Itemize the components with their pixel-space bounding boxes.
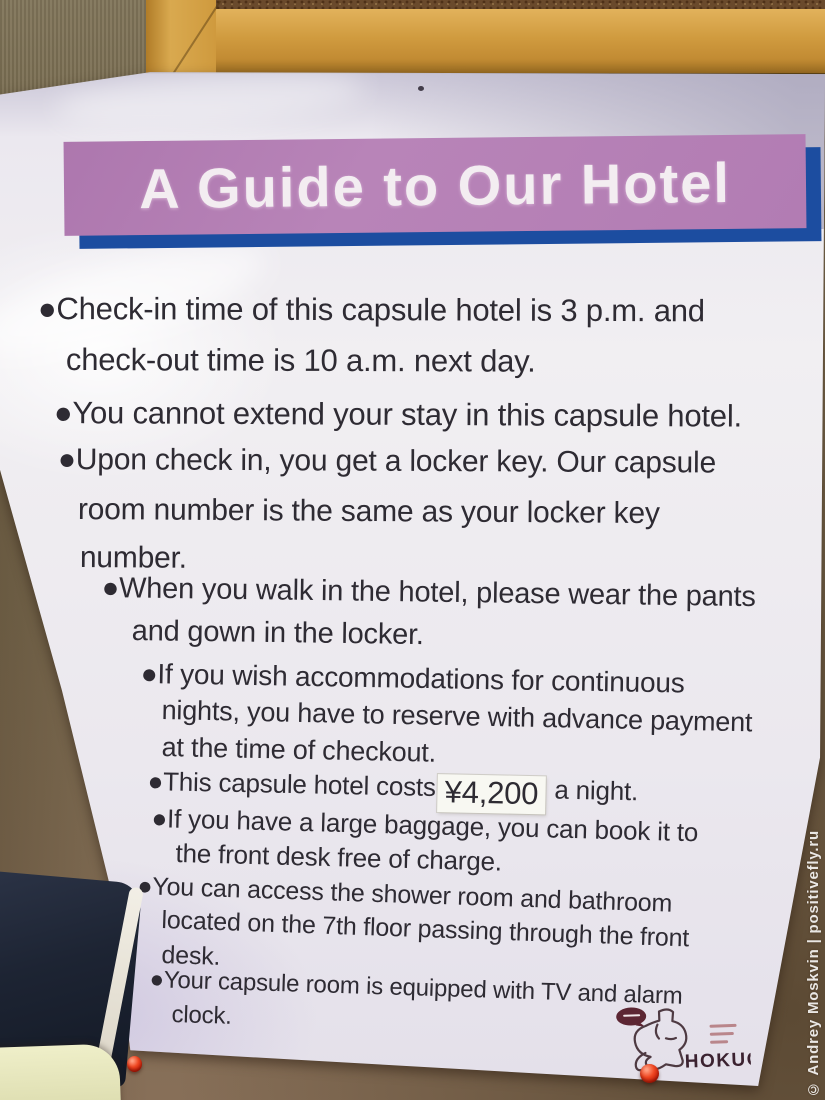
photographer-watermark: © Andrey Moskvin | positivefly.ru (805, 830, 822, 1098)
poster-bullet-line: check-out time is 10 a.m. next day. (66, 342, 536, 380)
poster-bullet-line: at the time of checkout. (161, 732, 436, 769)
poster-bullet-line: the front desk free of charge. (175, 838, 502, 878)
pale-foreground-object (0, 1043, 121, 1100)
poster-bullet-line: ●When you walk in the hotel, please wear… (102, 572, 756, 614)
poster-bullet-line: ●Upon check in, you get a locker key. Ou… (58, 443, 716, 480)
pushpin-left (127, 1056, 142, 1072)
poster-bullet-line: room number is the same as your locker k… (78, 493, 660, 531)
logo-small-text (710, 1024, 738, 1044)
poster-bullet-line: number. (80, 541, 187, 576)
poster-bullet-line: and gown in the locker. (132, 615, 424, 652)
price-line-post: a night. (547, 774, 638, 806)
logo-wordmark: HOKUO (684, 1049, 751, 1073)
price-sticker: ¥4,200 (437, 774, 545, 814)
hotel-logo: HOKUO (599, 999, 752, 1079)
poster-bullet-line: ●You cannot extend your stay in this cap… (54, 395, 742, 435)
logo-speech-bubble (616, 1007, 647, 1026)
poster-bullet-line: nights, you have to reserve with advance… (161, 695, 752, 738)
photo-scene: A Guide to Our Hotel ●Check-in time of t… (0, 0, 825, 1100)
poster-bullet-line: ●Check-in time of this capsule hotel is … (38, 291, 705, 329)
poster-bullet-line: ●If you wish accommodations for continuo… (140, 658, 684, 699)
price-line-pre: ●This capsule hotel costs (147, 766, 436, 802)
pushpin-right (640, 1064, 659, 1083)
poster-bullet-line: clock. (171, 1001, 232, 1031)
poster-top-shadow (0, 66, 825, 74)
